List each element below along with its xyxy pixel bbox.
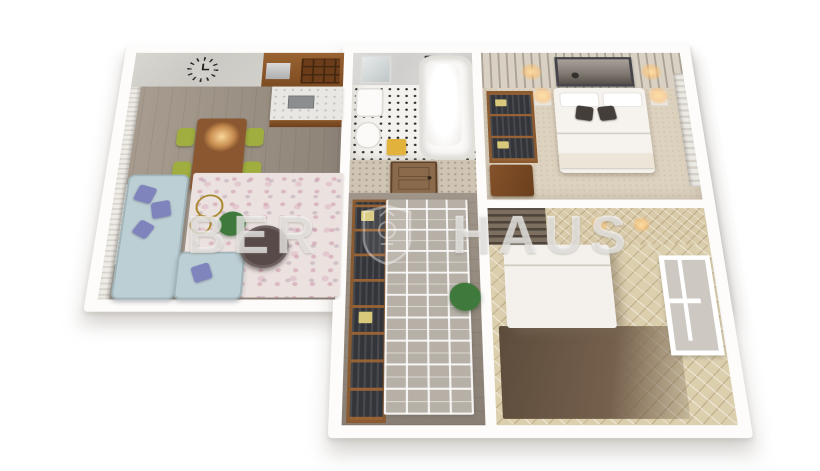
- dark-pillow: [575, 105, 594, 121]
- storage-box: [495, 99, 507, 106]
- living-room: [98, 53, 344, 300]
- wine-rack: [300, 59, 340, 84]
- clock-face: [191, 61, 215, 79]
- kitchen-sink: [288, 96, 315, 109]
- clock-hour-hand: [203, 69, 210, 70]
- door-knob-icon: [428, 176, 432, 179]
- dresser: [490, 165, 535, 197]
- duvet-fold: [557, 133, 651, 135]
- dining-chair: [245, 128, 265, 146]
- dark-rug: [499, 326, 691, 419]
- wall-clock-icon: [185, 57, 219, 82]
- door-panel: [398, 167, 429, 177]
- concrete-accent-wall: [131, 53, 264, 87]
- pillow: [602, 93, 643, 107]
- bedroom-main: [481, 53, 703, 200]
- slat-accent-wall-dark: [487, 208, 547, 245]
- duvet-fold: [504, 264, 611, 266]
- washbasin: [355, 88, 384, 117]
- bathroom-mirror: [360, 56, 392, 84]
- kitchen-counter: [270, 87, 343, 121]
- hallway-open-wardrobe: [346, 200, 388, 424]
- potted-plant-icon: [449, 283, 481, 311]
- slat-accent-wall: [481, 53, 685, 88]
- white-bed: [503, 245, 617, 328]
- dining-chair: [176, 128, 196, 146]
- double-bed: [553, 88, 655, 173]
- wall-artwork: [554, 57, 635, 86]
- extractor-hood: [265, 63, 290, 79]
- kitchen-base-cabinets: [269, 120, 342, 127]
- storage-box: [497, 141, 509, 148]
- wall-lamp-glow: [520, 63, 543, 81]
- open-wardrobe: [486, 91, 538, 163]
- hallway: [342, 160, 486, 425]
- interior-door: [390, 161, 437, 194]
- diamond-wallpaper-wall: [545, 208, 710, 245]
- sofa-cushion: [151, 200, 172, 219]
- ceiling-light-glow: [590, 217, 610, 233]
- folded-throw: [558, 153, 654, 168]
- door-panel: [398, 179, 429, 189]
- artwork-figure: [571, 72, 579, 78]
- apartment-3d-scene: [63, 44, 754, 438]
- toilet: [354, 122, 381, 149]
- kitchen-upper-cabinets: [261, 53, 344, 87]
- storage-box: [358, 312, 372, 323]
- bathroom: [350, 53, 476, 160]
- hallway-wallpaper-wall: [349, 160, 477, 193]
- ceiling-light-glow: [631, 217, 651, 233]
- bedside-lamp-glow: [531, 87, 555, 105]
- bedroom-second: [487, 208, 737, 425]
- wall-lamp-glow: [639, 63, 664, 81]
- storage-box: [361, 211, 374, 221]
- floorplan-render: BER HAUS: [0, 0, 820, 471]
- bathtub: [419, 56, 476, 160]
- yellow-towel: [387, 139, 406, 155]
- bathtub-basin: [426, 64, 461, 146]
- dark-pillow: [597, 105, 617, 121]
